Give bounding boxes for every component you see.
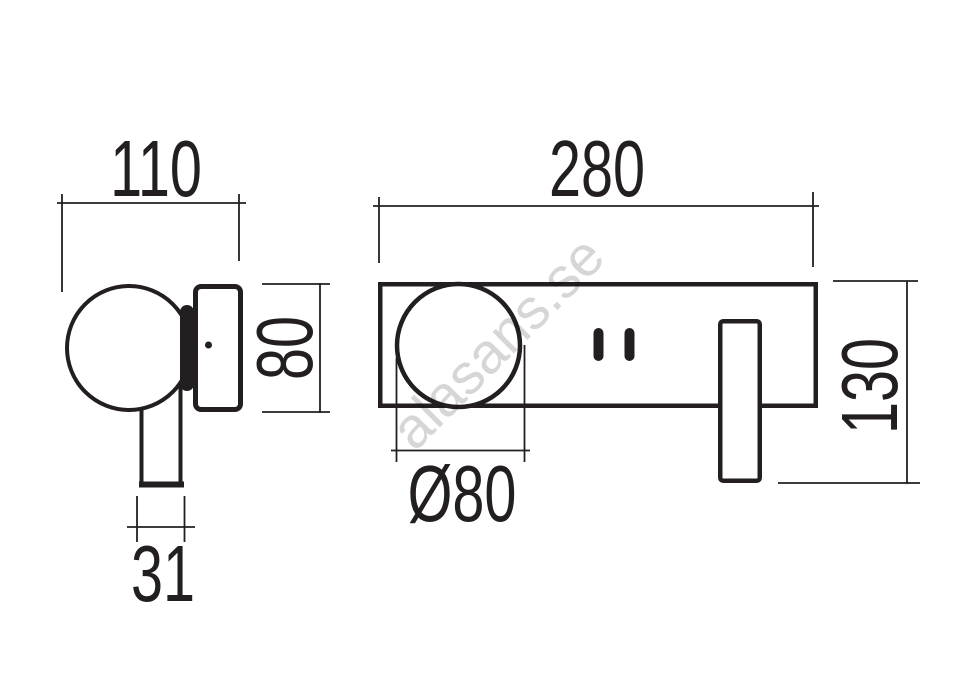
dim-front-width: 280 — [373, 124, 819, 267]
switch-button-right — [625, 328, 635, 361]
wall-lamp-dimension-drawing: 110 80 31 — [0, 0, 980, 680]
front-spot-cylinder — [720, 321, 760, 481]
dim-110-label: 110 — [110, 124, 202, 214]
dim-31-label: 31 — [131, 529, 195, 619]
dim-130-label: 130 — [825, 338, 915, 434]
dim-280-label: 280 — [549, 124, 645, 214]
ball-joint-collar — [180, 305, 194, 391]
technical-drawing-canvas: 110 80 31 — [0, 0, 980, 680]
switch-button-left — [594, 328, 604, 361]
front-view: 280 130 Ø80 — [373, 124, 920, 539]
dim-80-label: 80 — [240, 316, 330, 380]
dim-side-depth: 110 — [57, 124, 246, 292]
dim-d80-label: Ø80 — [408, 449, 517, 539]
side-ball-lamp — [67, 286, 191, 410]
plate-screw-dot — [205, 342, 212, 349]
dim-side-plate-height: 80 — [240, 283, 330, 413]
dim-side-arm-width: 31 — [127, 496, 195, 618]
side-view: 110 80 31 — [57, 124, 330, 619]
side-wall-plate — [196, 287, 241, 410]
